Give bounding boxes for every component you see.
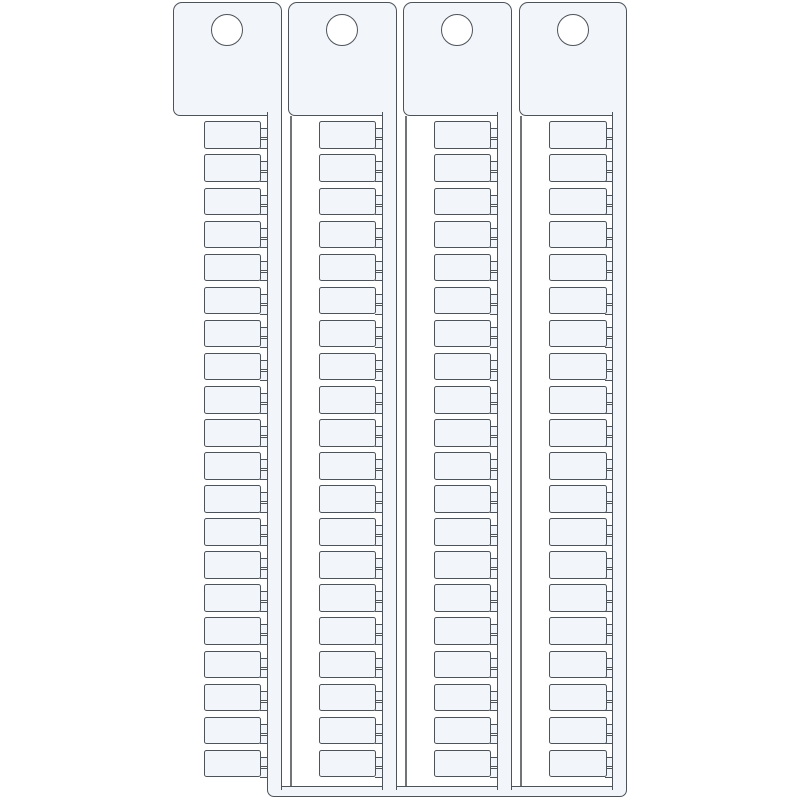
- marker-tag: [319, 584, 377, 612]
- marker-tag: [549, 584, 607, 612]
- marker-tag: [434, 221, 492, 249]
- marker-tag: [204, 617, 262, 645]
- left-carrier-rail: [405, 116, 407, 787]
- marker-tag: [549, 551, 607, 579]
- marker-tag: [319, 353, 377, 381]
- marker-tag: [434, 551, 492, 579]
- marker-tag: [319, 485, 377, 513]
- marker-tag: [434, 320, 492, 348]
- marker-tag: [319, 717, 377, 745]
- marker-tag: [549, 651, 607, 679]
- marker-tag: [434, 287, 492, 315]
- marker-tag: [549, 353, 607, 381]
- marker-tag: [434, 651, 492, 679]
- product-illustration: [0, 0, 800, 800]
- marker-tag: [549, 320, 607, 348]
- marker-tag: [549, 121, 607, 149]
- marker-tag: [204, 717, 262, 745]
- mounting-hole: [326, 14, 358, 46]
- marker-tag: [549, 518, 607, 546]
- marker-tag: [434, 188, 492, 216]
- marker-tag: [319, 419, 377, 447]
- marker-tag: [204, 750, 262, 778]
- marker-tag: [434, 452, 492, 480]
- marker-tag: [204, 221, 262, 249]
- carrier-rail: [382, 112, 397, 790]
- marker-tag: [549, 386, 607, 414]
- marker-tag: [204, 485, 262, 513]
- marker-tag: [319, 452, 377, 480]
- marker-tag: [434, 121, 492, 149]
- marker-tag: [204, 254, 262, 282]
- marker-tag: [319, 551, 377, 579]
- marker-tag: [204, 518, 262, 546]
- marker-tag: [204, 287, 262, 315]
- left-carrier-rail: [520, 116, 522, 787]
- marker-tag: [434, 419, 492, 447]
- marker-tag: [204, 452, 262, 480]
- marker-tag: [549, 717, 607, 745]
- marker-tag: [204, 684, 262, 712]
- marker-tag: [549, 254, 607, 282]
- marker-tag: [204, 551, 262, 579]
- marker-tag: [319, 287, 377, 315]
- marker-tag: [319, 221, 377, 249]
- marker-tag: [319, 188, 377, 216]
- marker-tag: [204, 584, 262, 612]
- marker-tag: [434, 254, 492, 282]
- marker-tag: [204, 419, 262, 447]
- marker-tag: [204, 320, 262, 348]
- marker-tag: [434, 684, 492, 712]
- bottom-carrier-bar: [267, 786, 628, 797]
- marker-tag: [434, 584, 492, 612]
- marker-tag: [319, 254, 377, 282]
- marker-tag: [549, 188, 607, 216]
- marker-tag: [319, 750, 377, 778]
- marker-tag: [204, 651, 262, 679]
- mounting-hole: [211, 14, 243, 46]
- marker-tag: [549, 221, 607, 249]
- marker-tag: [319, 651, 377, 679]
- marker-tag: [549, 684, 607, 712]
- marker-tag: [434, 353, 492, 381]
- mounting-hole: [557, 14, 589, 46]
- marker-tag: [204, 154, 262, 182]
- marker-tag: [319, 154, 377, 182]
- marker-tag: [434, 518, 492, 546]
- marker-tag: [319, 386, 377, 414]
- carrier-rail: [267, 112, 282, 790]
- marker-tag: [319, 684, 377, 712]
- marker-tag: [434, 154, 492, 182]
- carrier-rail: [612, 112, 627, 790]
- marker-tag: [204, 353, 262, 381]
- marker-tag: [549, 452, 607, 480]
- marker-tag: [549, 154, 607, 182]
- marker-tag: [319, 320, 377, 348]
- carrier-rail: [497, 112, 512, 790]
- marker-tag: [204, 121, 262, 149]
- marker-tag: [549, 419, 607, 447]
- marker-tag: [549, 287, 607, 315]
- marker-tag: [549, 617, 607, 645]
- marker-tag: [434, 717, 492, 745]
- mounting-hole: [441, 14, 473, 46]
- marker-tag: [319, 617, 377, 645]
- marker-tag: [319, 121, 377, 149]
- marker-tag: [319, 518, 377, 546]
- marker-tag: [434, 750, 492, 778]
- marker-tag: [204, 386, 262, 414]
- marker-tag: [204, 188, 262, 216]
- marker-tag: [549, 750, 607, 778]
- left-carrier-rail: [290, 116, 292, 787]
- marker-tag: [434, 386, 492, 414]
- marker-tag: [549, 485, 607, 513]
- marker-tag: [434, 485, 492, 513]
- marker-tag: [434, 617, 492, 645]
